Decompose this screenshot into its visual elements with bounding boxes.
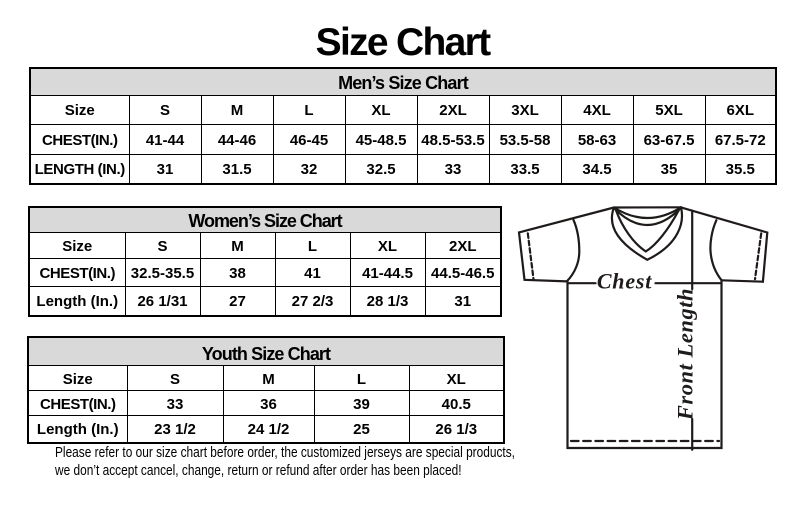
svg-text:Chest: Chest — [597, 268, 652, 293]
svg-text:Front Length: Front Length — [673, 288, 698, 421]
